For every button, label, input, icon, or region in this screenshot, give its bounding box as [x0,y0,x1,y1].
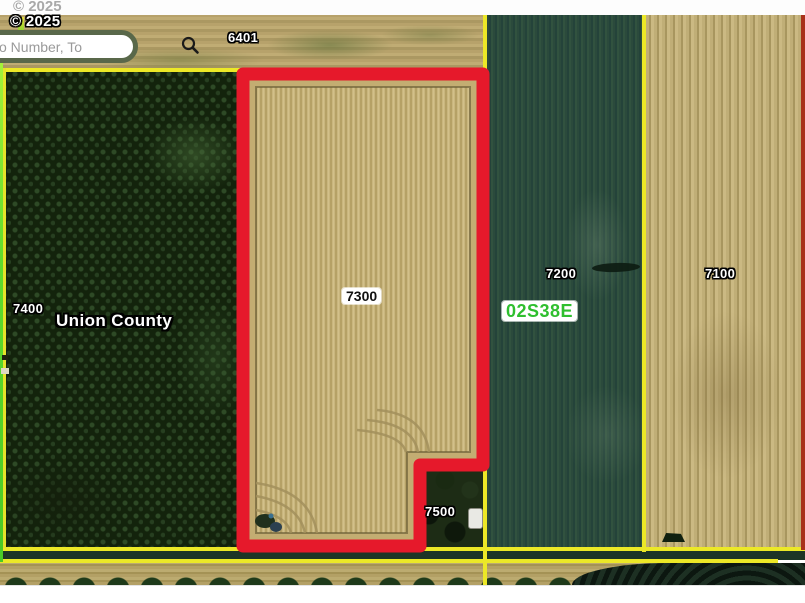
parcel-label-7300-text: 7300 [342,288,381,304]
county-name-label: Union County [56,311,172,331]
parcel-label-7200: 7200 [546,266,576,281]
search-button[interactable] [180,35,209,58]
township-label: 02S38E [502,301,577,322]
parcel-line-east [642,15,646,552]
search-input[interactable] [0,39,180,55]
parcel-region-7200[interactable] [487,15,645,552]
tree-row [0,573,578,585]
east-edge-boundary [801,15,805,550]
bottom-white-bar [0,585,805,603]
parcel-line-south-2 [0,559,778,563]
search-icon [180,35,200,58]
township-label-text: 02S38E [502,301,577,321]
map-mark [2,355,8,360]
top-white-bar [0,0,805,15]
parcel-line-north [0,68,240,72]
selected-parcel-7300[interactable] [225,58,505,558]
parcel-label-7100: 7100 [705,266,735,281]
search-box[interactable] [0,30,138,63]
parcel-label-7300: 7300 [342,288,381,306]
parcel-line-west [3,68,6,548]
parcel-label-7500: 7500 [425,504,455,519]
parcel-label-7400: 7400 [13,301,43,316]
map-mark [1,368,9,374]
parcel-label-6401: 6401 [228,30,258,45]
attribution-map-text: © 2025 [10,13,60,30]
parcel-region-7100[interactable] [646,15,805,552]
map-viewport[interactable]: 6401 7400 7300 7200 7100 7500 Union Coun… [0,0,805,603]
